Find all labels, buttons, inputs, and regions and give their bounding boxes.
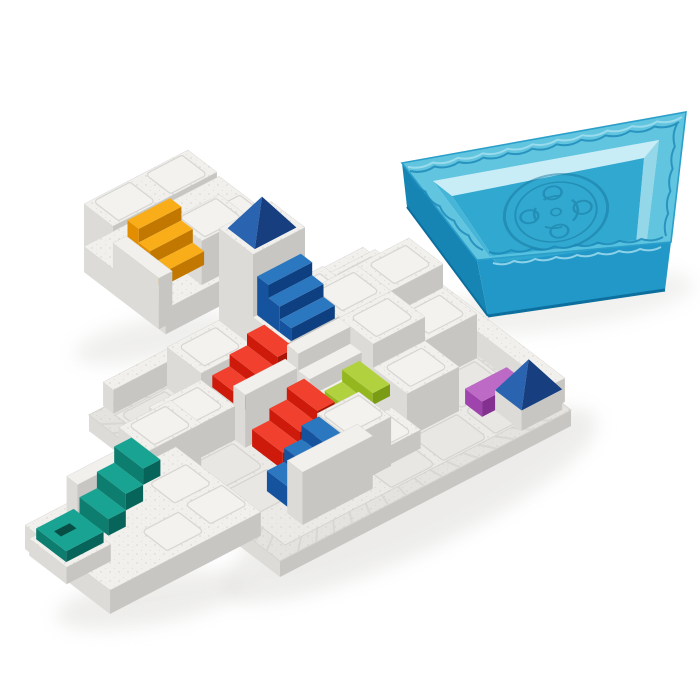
rim-notch	[101, 423, 126, 424]
rim-notch	[333, 520, 334, 533]
puzzle-game-product-photo	[0, 0, 700, 700]
block-wall-right-face	[159, 271, 173, 329]
product-photo-stage	[0, 0, 700, 700]
rim-notch	[316, 528, 317, 542]
white-wall-left-face	[233, 386, 245, 448]
storage-tray-lid	[402, 112, 686, 316]
